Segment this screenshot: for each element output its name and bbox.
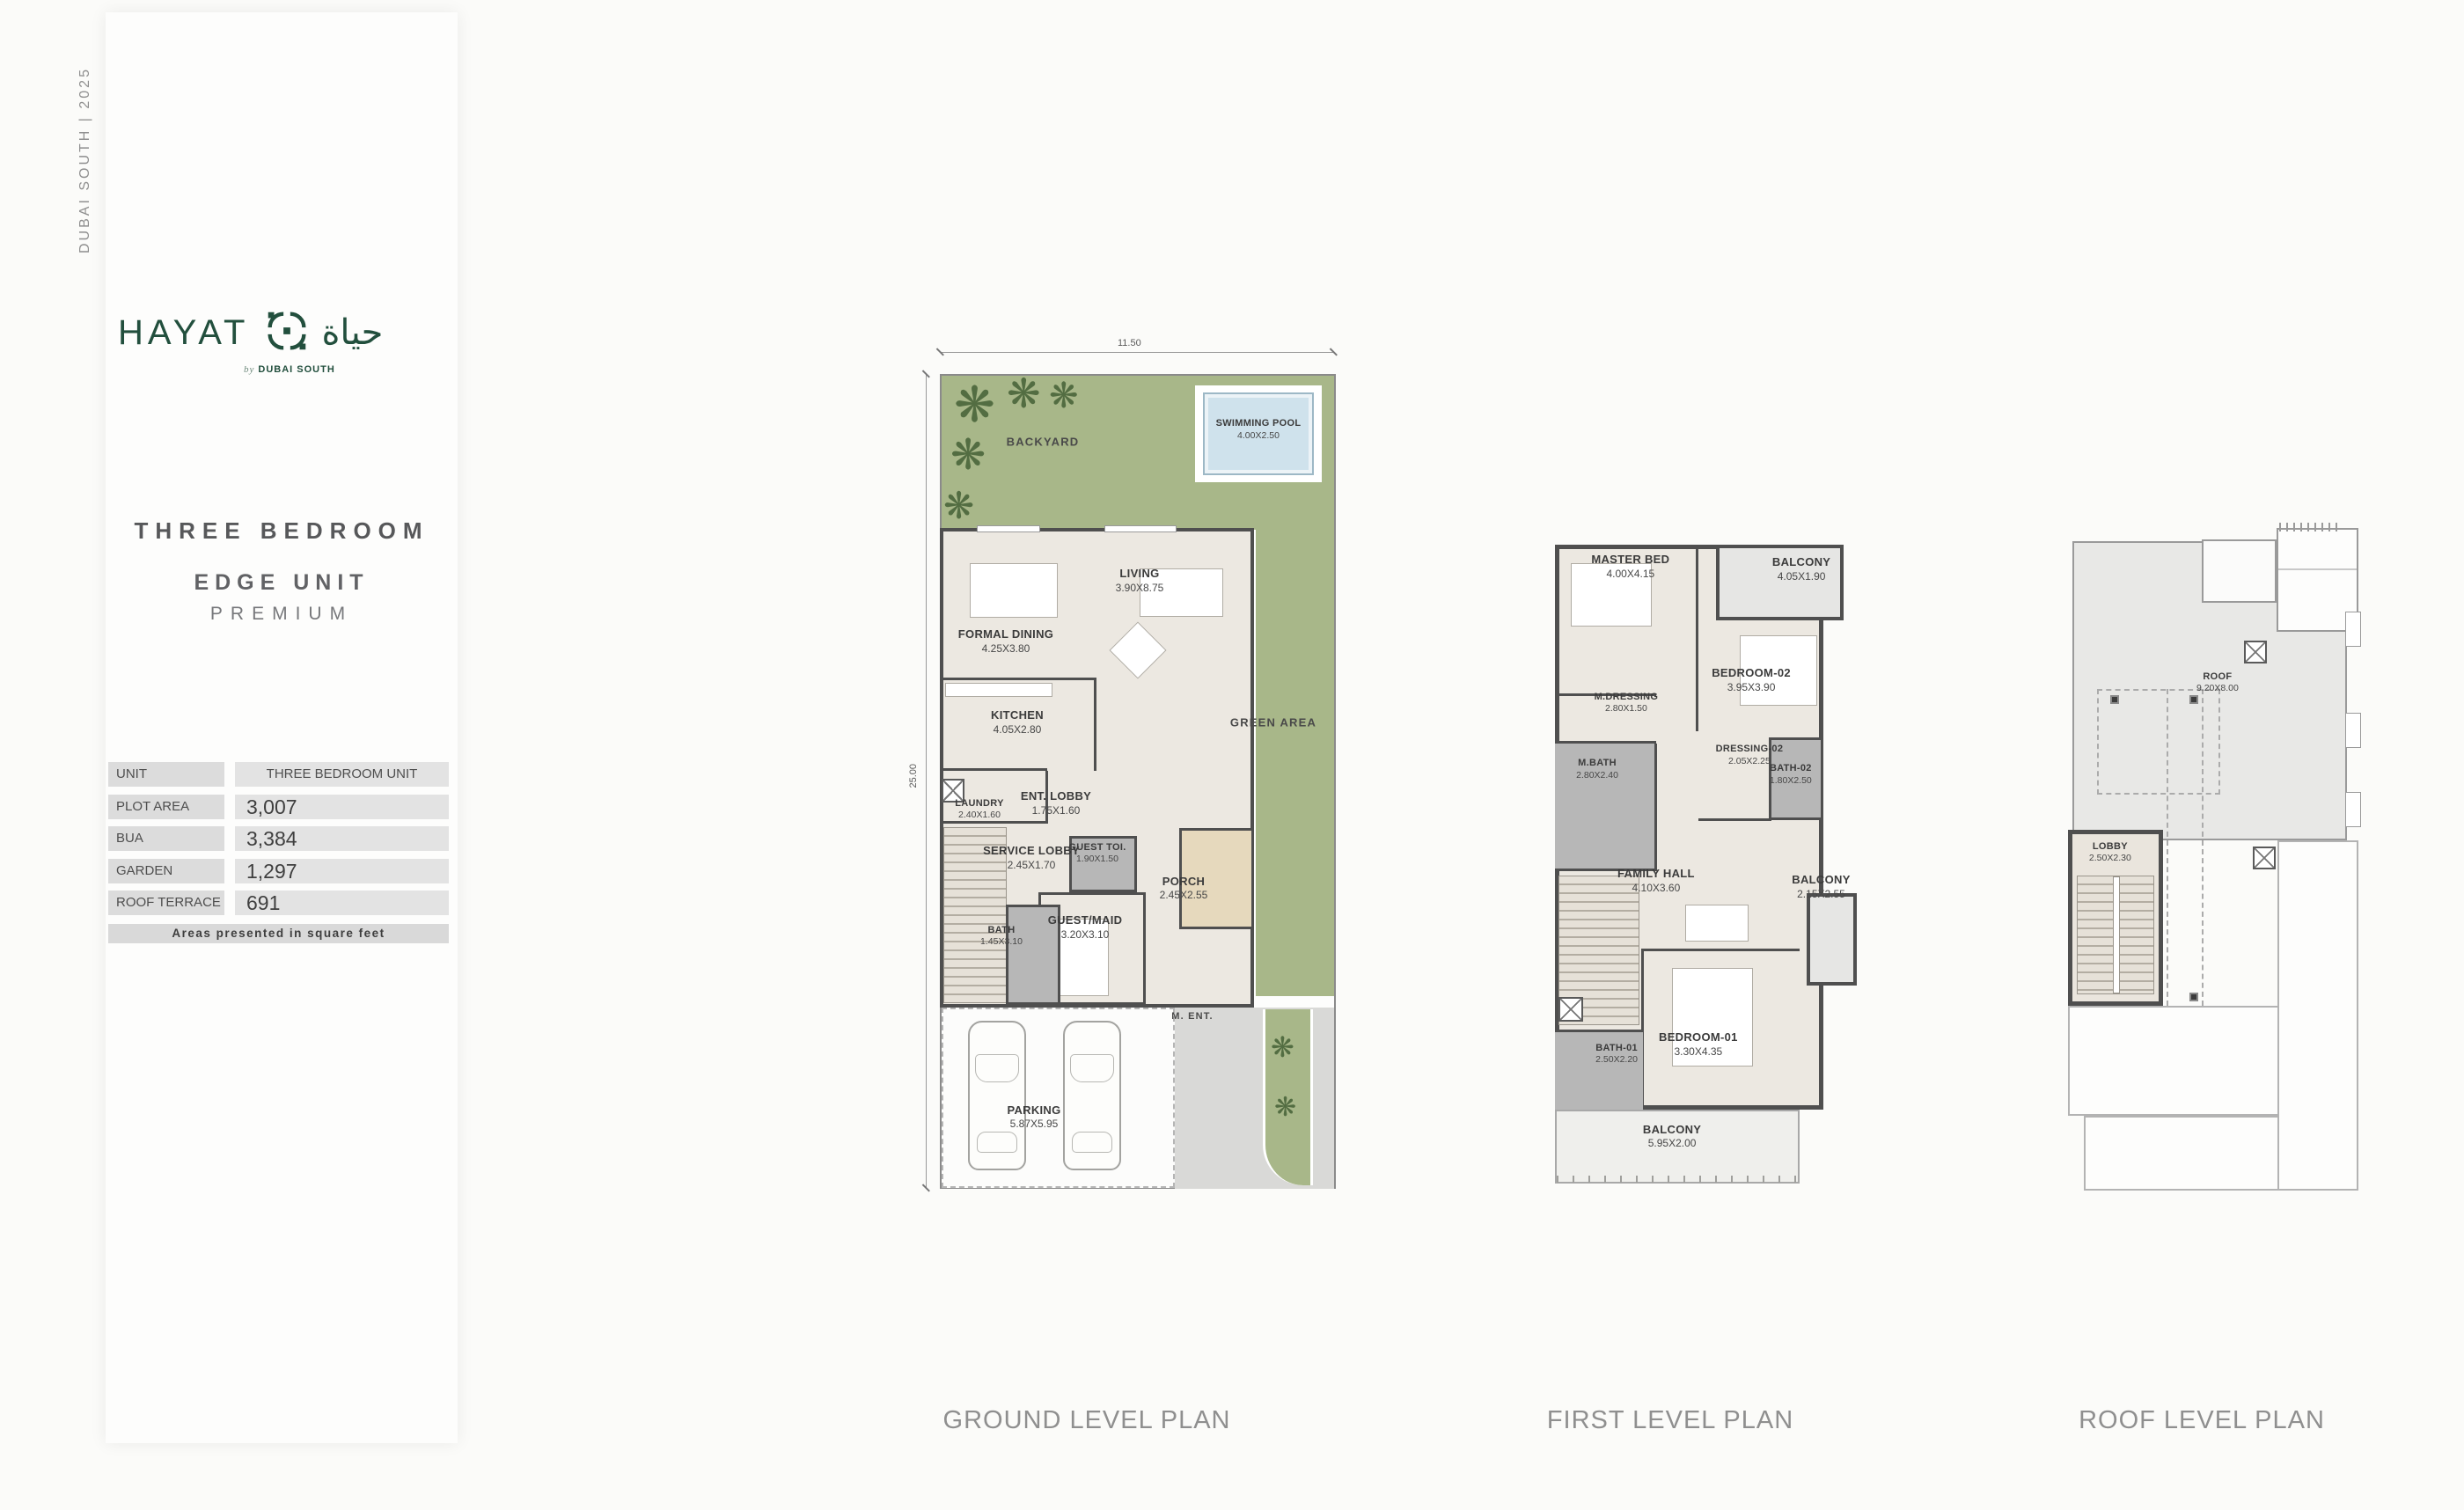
- spec-value: 691: [235, 891, 449, 915]
- car: [1063, 1021, 1121, 1170]
- dimension-left-value: 25.00: [908, 764, 919, 788]
- master-bed: [1571, 563, 1652, 627]
- tree-icon: ❋: [1049, 378, 1079, 414]
- hall-sofa: [1685, 905, 1749, 942]
- spec-row: GARDEN1,297: [108, 859, 451, 883]
- byline-text: DUBAI SOUTH: [258, 364, 334, 375]
- pergola-post: [2189, 695, 2198, 704]
- spec-label: BUA: [108, 826, 224, 851]
- tree-icon: ❋: [950, 435, 986, 477]
- bath-02-room: [1769, 737, 1823, 820]
- dining-table: [970, 563, 1058, 618]
- shaft-box: [1558, 997, 1583, 1022]
- shaft-box: [2244, 641, 2267, 663]
- spec-label: PLOT AREA: [108, 795, 224, 819]
- dimension-line-left: [926, 374, 927, 1189]
- porch: [1179, 828, 1254, 929]
- master-bath-room: [1555, 744, 1657, 871]
- bed-02: [1740, 635, 1817, 706]
- planter: [2345, 792, 2361, 827]
- balcony-mid: [1807, 893, 1857, 986]
- planter: [2345, 612, 2361, 647]
- first-plan-title: FIRST LEVEL PLAN: [1494, 1406, 1846, 1435]
- roof-hatch: [2279, 523, 2343, 531]
- spec-label: UNIT: [108, 762, 224, 787]
- swimming-pool: [1203, 392, 1314, 475]
- spec-row: BUA3,384: [108, 826, 451, 851]
- window: [977, 525, 1040, 532]
- tree-icon: ❋: [1274, 1095, 1296, 1121]
- tree-icon: ❋: [943, 487, 974, 524]
- bed-01: [1672, 968, 1753, 1067]
- spec-label: ROOF TERRACE: [108, 891, 224, 915]
- spec-row: ROOF TERRACE691: [108, 891, 451, 915]
- balcony-bottom: [1555, 1110, 1800, 1184]
- bath-01-room: [1555, 1030, 1643, 1110]
- ground-level-plan: 11.50 25.00 ❋ ❋ ❋ ❋ ❋: [915, 341, 1355, 1208]
- pergola-post: [2189, 993, 2198, 1001]
- guest-toilet-room: [1069, 836, 1137, 892]
- dimension-top-value: 11.50: [1118, 338, 1141, 348]
- terrace-outline-right: [2277, 840, 2358, 1191]
- brand-byline: byDUBAI SOUTH: [244, 364, 335, 375]
- tree-icon: ❋: [954, 380, 995, 429]
- brand-logo: HAYAT حياة: [118, 301, 452, 364]
- brand-arabic: حياة: [321, 315, 383, 350]
- brochure-page: DUBAI SOUTH | 2025 HAYAT حياة byDUBAI SO…: [0, 0, 2464, 1510]
- planter: [2345, 713, 2361, 748]
- bath-room: [1006, 905, 1060, 1005]
- roof-plan-title: ROOF LEVEL PLAN: [2026, 1406, 2378, 1435]
- first-level-plan: MASTER BED4.00X4.15BALCONY4.05X1.90BEDRO…: [1553, 528, 1861, 1197]
- roof-notch: [2202, 539, 2277, 603]
- car: [968, 1021, 1026, 1170]
- hayat-logo-icon: [261, 305, 312, 361]
- byline-prefix: by: [244, 364, 254, 375]
- sidebar-card: HAYAT حياة byDUBAI SOUTH THREE BEDROOM E…: [106, 12, 458, 1443]
- sofa: [1140, 568, 1223, 617]
- ground-plan-title: GROUND LEVEL PLAN: [911, 1406, 1263, 1435]
- green-area-strip: [1256, 530, 1334, 996]
- unit-heading: THREE BEDROOM: [106, 517, 458, 545]
- pergola-band: [2167, 689, 2204, 1006]
- spec-row: UNITTHREE BEDROOM UNIT: [108, 762, 451, 787]
- balcony-railing: [1557, 1176, 1798, 1183]
- staircase: [943, 827, 1007, 1003]
- tree-icon: ❋: [1271, 1033, 1294, 1061]
- tree-icon: ❋: [1007, 373, 1041, 414]
- kitchen-counter: [945, 683, 1052, 697]
- window: [1104, 525, 1177, 532]
- edition-vertical-text: DUBAI SOUTH | 2025: [77, 25, 93, 253]
- spec-value: 1,297: [235, 859, 449, 883]
- spec-value: 3,384: [235, 826, 449, 851]
- spec-label: GARDEN: [108, 859, 224, 883]
- shaft-box: [942, 779, 964, 803]
- terrace-outline: [2084, 1116, 2290, 1191]
- spec-row: PLOT AREA3,007: [108, 795, 451, 819]
- balcony-top: [1716, 545, 1844, 620]
- roof-level-plan: ROOF9.20X8.00LOBBY2.50X2.30: [2068, 528, 2385, 1197]
- unit-subheading: EDGE UNIT: [106, 570, 458, 596]
- spec-footnote: Areas presented in square feet: [108, 924, 449, 943]
- staircase: [2077, 876, 2154, 994]
- spec-value: 3,007: [235, 795, 449, 819]
- unit-tier: PREMIUM: [106, 604, 458, 625]
- brand-wordmark: HAYAT: [118, 313, 249, 353]
- terrace-outline: [2068, 1006, 2290, 1116]
- dimension-line-top: [940, 352, 1334, 353]
- pergola-post: [2110, 695, 2119, 704]
- shaft-box: [2253, 847, 2276, 869]
- spec-value: THREE BEDROOM UNIT: [235, 762, 449, 787]
